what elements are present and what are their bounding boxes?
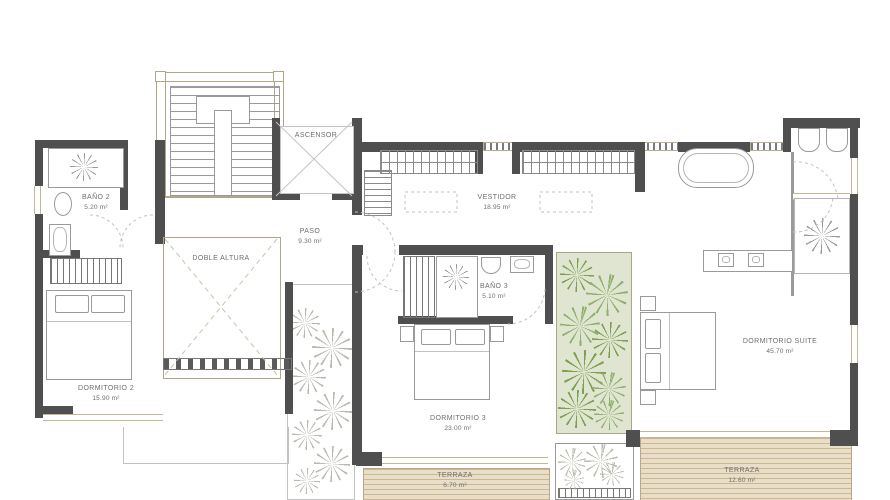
shower-icon	[804, 218, 840, 254]
room-name: PASO	[300, 228, 321, 235]
wall	[35, 140, 43, 186]
sliding-door	[640, 431, 830, 438]
window	[34, 186, 41, 214]
plant-sketch-icon	[600, 462, 624, 486]
wall	[635, 142, 645, 192]
wall	[352, 245, 363, 255]
wall	[512, 142, 520, 174]
wall-corner	[356, 452, 382, 466]
plant-icon	[592, 322, 628, 358]
closet-shelves	[364, 170, 392, 216]
elevator-wall	[272, 118, 280, 200]
room-area: 18.95 m²	[478, 203, 517, 212]
bidet-icon	[826, 128, 848, 152]
wall	[35, 140, 128, 148]
nightstand	[400, 326, 414, 342]
sink-icon	[748, 253, 764, 267]
sink-icon	[49, 224, 71, 256]
sink-icon	[510, 256, 534, 273]
wall-corner	[626, 430, 640, 447]
room-area: 6.70 m²	[437, 481, 472, 490]
wall	[850, 118, 858, 158]
room-area: 5.20 m²	[82, 203, 110, 212]
stair-center-rail	[214, 110, 232, 196]
wall	[783, 118, 860, 128]
bathtub-icon	[678, 148, 754, 188]
plant-sketch-icon	[290, 308, 320, 338]
window-hatch	[640, 142, 680, 151]
room-label-dormitorio3: DORMITORIO 3 23.00 m²	[430, 414, 486, 434]
planter-box-hatch	[558, 488, 631, 498]
room-name: DORMITORIO 2	[78, 385, 134, 392]
room-area: 45.70 m²	[743, 347, 817, 356]
room-area: 15.90 m²	[78, 394, 134, 403]
window-hatch	[483, 142, 514, 151]
plant-sketch-icon	[294, 468, 320, 494]
wall	[850, 363, 858, 433]
wardrobe	[50, 258, 122, 284]
room-area: 5.10 m²	[480, 292, 508, 301]
nightstand	[640, 390, 656, 405]
room-name: BAÑO 3	[480, 283, 508, 290]
toilet-icon	[481, 257, 501, 274]
window	[851, 158, 858, 194]
wall-corner	[830, 430, 858, 446]
plant-sketch-icon	[314, 392, 352, 430]
wall	[35, 264, 43, 408]
room-name: TERRAZA	[724, 467, 759, 474]
room-label-suite: DORMITORIO SUITE 45.70 m²	[743, 337, 817, 357]
bed	[46, 290, 132, 380]
wall	[352, 255, 362, 465]
bed	[414, 324, 490, 400]
wall	[285, 282, 293, 414]
window	[43, 414, 163, 421]
room-label-vestidor: VESTIDOR 18.95 m²	[478, 193, 517, 213]
floor-plan: ASCENSOR BAÑO 2 5.20 m² PASO 9.30 m² DOB…	[0, 0, 890, 500]
nightstand	[640, 296, 656, 311]
shower-icon	[70, 153, 98, 181]
room-label-bano2: BAÑO 2 5.20 m²	[82, 193, 110, 213]
room-label-paso: PASO 9.30 m²	[298, 227, 321, 247]
room-label-terraza-der: TERRAZA 12.60 m²	[724, 466, 759, 486]
room-label-ascensor: ASCENSOR	[295, 131, 338, 141]
room-label-dormitorio2: DORMITORIO 2 15.90 m²	[78, 384, 134, 404]
room-area: 9.30 m²	[298, 237, 321, 246]
plant-icon	[558, 390, 596, 428]
plant-sketch-icon	[292, 360, 326, 394]
room-label-doble-altura: DOBLE ALTURA	[192, 254, 249, 264]
room-area: 12.60 m²	[724, 476, 759, 485]
lower-floor-outline	[123, 427, 289, 464]
plant-sketch-icon	[564, 470, 584, 490]
closet-rail	[380, 150, 478, 174]
room-name: BAÑO 2	[82, 194, 110, 201]
room-name: DORMITORIO SUITE	[743, 338, 817, 345]
wall	[399, 245, 553, 255]
window	[851, 325, 858, 363]
nightstand	[490, 326, 504, 342]
room-name: TERRAZA	[437, 472, 472, 479]
room-name: DOBLE ALTURA	[192, 255, 249, 262]
room-name: DORMITORIO 3	[430, 415, 486, 422]
sink-icon	[718, 253, 734, 267]
balustrade	[163, 358, 292, 370]
room-area: 23.00 m²	[430, 424, 486, 433]
stair-post	[155, 71, 166, 82]
room-name: VESTIDOR	[478, 194, 517, 201]
stair-post	[273, 71, 284, 82]
wall	[155, 140, 165, 244]
wall	[850, 194, 858, 325]
wardrobe	[403, 256, 435, 318]
bed	[640, 312, 716, 390]
toilet-icon	[798, 128, 820, 152]
room-label-bano3: BAÑO 3 5.10 m²	[480, 282, 508, 302]
shower-icon	[443, 264, 469, 290]
plant-icon	[594, 400, 624, 430]
plant-sketch-icon	[292, 420, 322, 450]
toilet-icon	[54, 192, 72, 216]
sliding-door	[378, 457, 548, 464]
window-hatch	[750, 142, 785, 151]
closet-rail	[522, 150, 635, 174]
room-label-terraza-izq: TERRAZA 6.70 m²	[437, 471, 472, 491]
wall	[545, 248, 553, 324]
room-name: ASCENSOR	[295, 132, 338, 139]
